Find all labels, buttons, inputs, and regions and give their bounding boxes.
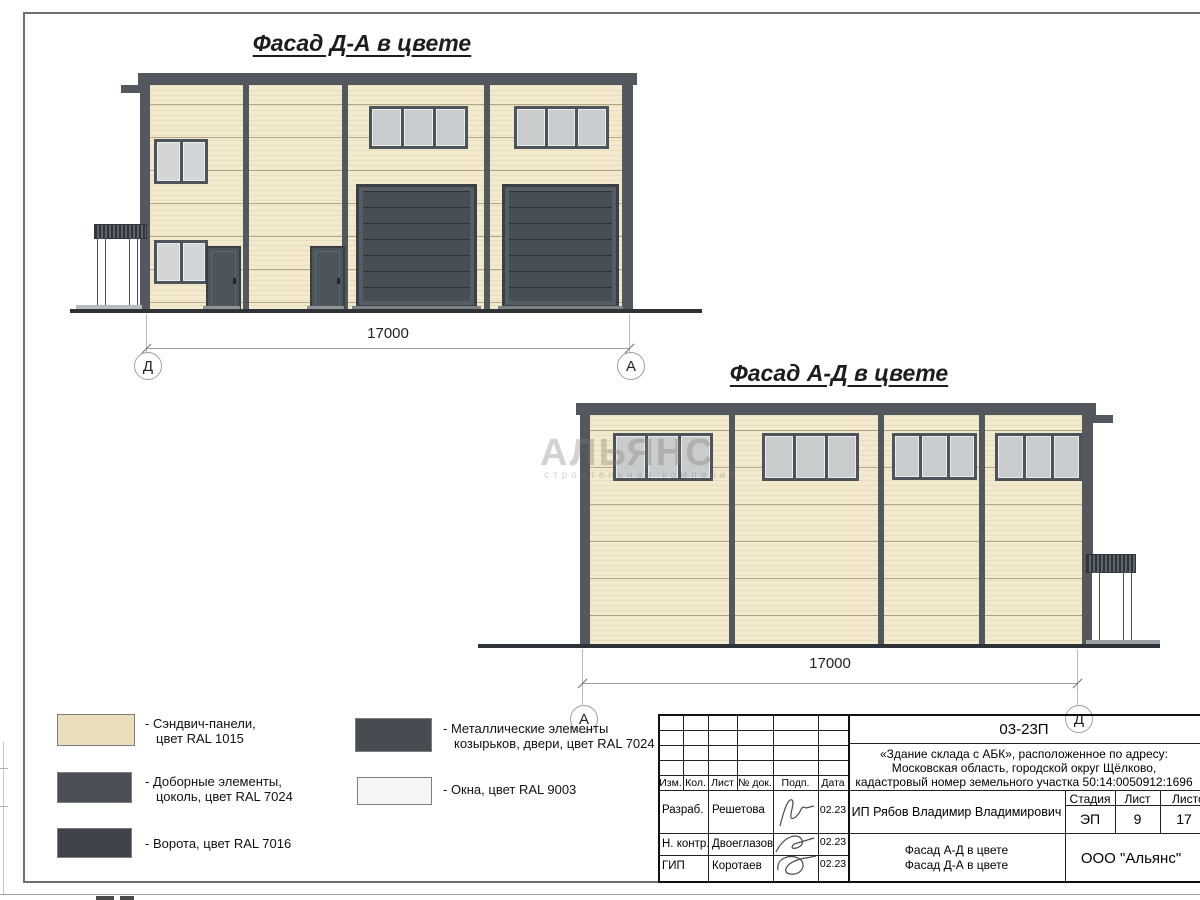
facade1-title: Фасад Д-А в цвете <box>232 30 492 57</box>
window-pane <box>895 436 919 477</box>
tb-sheets-label: Листов <box>1172 792 1200 806</box>
tb-col-izm: Изм. <box>658 777 683 789</box>
ext-line <box>1077 649 1078 705</box>
facade2-title: Фасад А-Д в цвете <box>729 360 949 387</box>
tb-project-line2: Московская область, городской округ Щёлк… <box>850 761 1198 775</box>
door-handle <box>233 278 236 284</box>
facade1-gate-2 <box>502 184 619 308</box>
tb-date-nkontr: 02.23 <box>818 836 848 848</box>
signature-razrab <box>774 792 818 832</box>
facade1-column-right <box>622 85 633 311</box>
window-pane <box>578 109 606 146</box>
tb-doc-number: 03-23П <box>848 721 1200 738</box>
tb-role-nkontr: Н. контр. <box>662 838 709 850</box>
legend-line: козырьков, двери, цвет RAL 7024 <box>443 736 655 751</box>
drawing-sheet: Фасад Д-А в цвете <box>0 0 1200 900</box>
tb-project-line1: «Здание склада с АБК», расположенное по … <box>850 747 1198 761</box>
facade1-canopy-post-1 <box>97 238 106 310</box>
window-pane <box>157 142 180 181</box>
ext-line <box>582 649 583 705</box>
window-pane <box>548 109 576 146</box>
facade2-window-2 <box>762 433 859 481</box>
facade2-canopy-fascia <box>1086 554 1136 573</box>
facade2-canopy-post-1 <box>1091 572 1100 645</box>
tb-sheet-label: Лист <box>1115 792 1160 806</box>
facade1-window-lower-left <box>154 240 208 284</box>
gate-sections <box>363 191 470 301</box>
tb-name-gip: Коротаев <box>712 860 762 872</box>
window-pane <box>372 109 401 146</box>
tb-grid <box>658 833 1200 834</box>
paper-edge-bottom <box>0 894 1200 895</box>
fold-tick-2 <box>0 806 8 807</box>
facade1-door-1 <box>206 246 241 312</box>
window-pane <box>436 109 465 146</box>
facade1-window-upper-left <box>154 139 208 184</box>
tb-grid <box>658 730 848 731</box>
facade1-ribbon-window-2 <box>514 106 609 149</box>
tb-grid <box>658 790 1200 791</box>
legend-swatch-trim-elements <box>57 772 132 803</box>
gate-sections <box>509 191 612 301</box>
door-handle <box>337 278 340 284</box>
facade1-mullion-1 <box>243 85 249 309</box>
tb-client: ИП Рябов Владимир Владимирович <box>850 805 1063 819</box>
facade1-dim-text: 17000 <box>338 325 438 342</box>
tb-company: ООО "Альянс" <box>1065 850 1197 867</box>
tb-grid <box>658 760 848 761</box>
legend-line: - Сэндвич-панели, <box>145 716 256 731</box>
facade1-canopy-fascia <box>94 224 147 239</box>
tb-role-gip: ГИП <box>662 860 685 872</box>
legend-line: - Ворота, цвет RAL 7016 <box>145 836 291 851</box>
tb-col-podp: Подп. <box>773 777 818 789</box>
legend-line: - Металлические элементы <box>443 721 655 736</box>
tb-border <box>658 714 660 883</box>
window-pane <box>1054 436 1079 478</box>
facade1-gate-1 <box>356 184 477 308</box>
tb-date-razrab: 02.23 <box>818 804 848 816</box>
legend-label: - Металлические элементы козырьков, двер… <box>443 721 655 751</box>
facade1-column-left <box>140 85 150 311</box>
legend-swatch-gates <box>57 828 132 858</box>
facade2-window-4 <box>995 433 1082 481</box>
facade1-ground-line <box>70 309 702 313</box>
tb-sheet-title-line1: Фасад А-Д в цвете <box>850 843 1063 857</box>
legend-label: - Окна, цвет RAL 9003 <box>443 782 576 797</box>
facade2-ground-line <box>478 644 1160 648</box>
window-pane <box>828 436 856 478</box>
window-pane <box>157 243 180 281</box>
facade2-parapet <box>576 403 1096 415</box>
window-pane <box>183 243 206 281</box>
window-pane <box>765 436 793 478</box>
tb-stage-label: Стадия <box>1065 792 1115 806</box>
facade2-gutter-stub <box>1092 415 1113 423</box>
tb-name-razrab: Решетова <box>712 804 765 816</box>
signature-nkontr-gip <box>772 830 818 880</box>
facade2-dim-line <box>582 683 1078 684</box>
window-pane <box>183 142 206 181</box>
frame-left <box>23 12 25 883</box>
legend-line: цвет RAL 1015 <box>145 731 256 746</box>
facade2-window-3 <box>892 433 977 480</box>
tb-col-ndok: № док. <box>737 777 773 789</box>
facade2-mullion-1 <box>729 415 735 645</box>
facade1-axis-marker-left: Д <box>134 352 162 380</box>
legend-line: - Доборные элементы, <box>145 774 293 789</box>
legend-line: цоколь, цвет RAL 7024 <box>145 789 293 804</box>
tb-sheet-value: 9 <box>1115 811 1160 827</box>
tb-col-list: Лист <box>708 777 737 789</box>
facade2-dim-text: 17000 <box>780 655 880 672</box>
axis-letter: Д <box>143 358 153 375</box>
legend-swatch-sandwich-panels <box>57 714 135 746</box>
tb-border <box>658 714 1200 716</box>
tb-name-nkontr: Двоеглазов <box>712 838 773 850</box>
facade1-canopy-post-2 <box>129 238 138 310</box>
facade1-axis-marker-right: А <box>617 352 645 380</box>
window-pane <box>517 109 545 146</box>
facade2-canopy-post-2 <box>1123 572 1132 645</box>
tb-border <box>658 881 1200 883</box>
legend-label: - Сэндвич-панели, цвет RAL 1015 <box>145 716 256 746</box>
axis-letter: А <box>626 358 636 375</box>
tb-grid <box>848 743 1200 744</box>
window-pane <box>404 109 433 146</box>
facade1-mullion-3 <box>484 85 490 309</box>
legend-swatch-windows <box>357 777 432 805</box>
facade1-dim-line <box>146 348 630 349</box>
fold-line-left <box>3 742 4 894</box>
facade1-door-2 <box>310 246 345 312</box>
window-pane <box>950 436 974 477</box>
legend-label: - Ворота, цвет RAL 7016 <box>145 836 291 851</box>
window-pane <box>998 436 1023 478</box>
tb-grid <box>658 745 848 746</box>
trim-mark-2 <box>120 896 134 900</box>
tb-sheets-value: 17 <box>1160 811 1200 827</box>
window-pane <box>796 436 824 478</box>
tb-col-kol: Кол. <box>683 777 708 789</box>
legend-swatch-metal-elements <box>355 718 432 752</box>
fold-tick-1 <box>0 768 8 769</box>
window-pane <box>1026 436 1051 478</box>
frame-top <box>23 12 1200 14</box>
legend-line: - Окна, цвет RAL 9003 <box>443 782 576 797</box>
facade2-mullion-3 <box>979 415 985 645</box>
tb-grid <box>658 775 848 776</box>
tb-role-razrab: Разраб. <box>662 804 703 816</box>
watermark-subtitle: строительная компания <box>544 470 739 481</box>
watermark-logo: АЛЬЯНС <box>540 432 715 475</box>
tb-stage-value: ЭП <box>1065 811 1115 827</box>
tb-grid <box>658 855 848 856</box>
tb-sheet-title-line2: Фасад Д-А в цвете <box>850 858 1063 872</box>
legend-label: - Доборные элементы, цоколь, цвет RAL 70… <box>145 774 293 804</box>
facade1-parapet <box>138 73 637 85</box>
tb-project-line3: кадастровый номер земельного участка 50:… <box>850 775 1198 789</box>
tb-date-gip: 02.23 <box>818 858 848 870</box>
facade1-ribbon-window-1 <box>369 106 468 149</box>
trim-mark-1 <box>96 896 114 900</box>
facade2-mullion-2 <box>878 415 884 645</box>
tb-col-data: Дата <box>818 777 848 789</box>
window-pane <box>922 436 946 477</box>
